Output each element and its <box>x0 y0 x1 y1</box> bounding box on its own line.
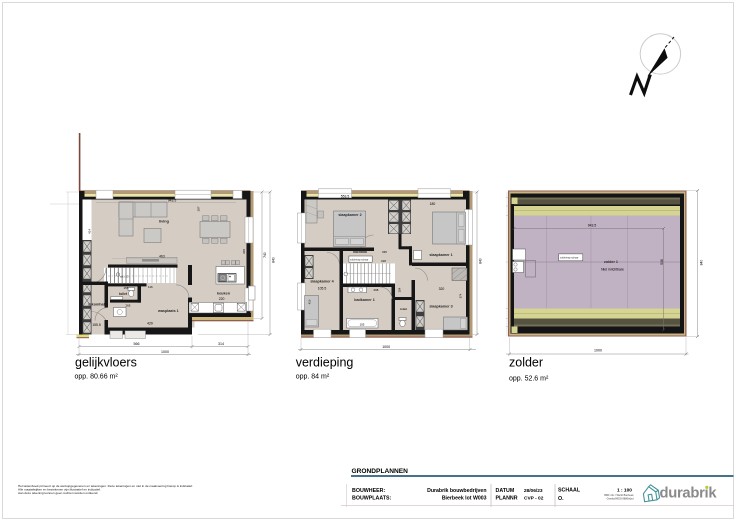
svg-text:GRONDPLANNEN: GRONDPLANNEN <box>352 468 409 475</box>
svg-text:opp. 52.6 m²: opp. 52.6 m² <box>509 376 549 383</box>
svg-text:gelijkvloers: gelijkvloers <box>75 356 137 370</box>
svg-text:opp. 84 m²: opp. 84 m² <box>296 374 330 381</box>
svg-text:116: 116 <box>148 285 153 289</box>
svg-text:1000: 1000 <box>161 350 169 354</box>
svg-text:429: 429 <box>147 321 153 325</box>
svg-text:verdieping: verdieping <box>296 356 354 370</box>
svg-text:368: 368 <box>242 249 246 254</box>
svg-text:265: 265 <box>126 303 131 307</box>
svg-text:opp. 80.66 m²: opp. 80.66 m² <box>75 374 119 381</box>
svg-text:840: 840 <box>479 258 483 264</box>
svg-text:slaapkamer 2: slaapkamer 2 <box>338 213 361 217</box>
svg-text:SCHAAL: SCHAAL <box>558 488 581 494</box>
svg-text:1 : 100: 1 : 100 <box>617 487 632 493</box>
svg-text:O.: O. <box>558 496 564 502</box>
svg-text:DATUM: DATUM <box>496 488 515 494</box>
svg-text:740: 740 <box>263 252 267 258</box>
svg-text:PLANNR: PLANNR <box>496 495 518 501</box>
svg-text:314: 314 <box>218 342 224 346</box>
svg-text:320: 320 <box>439 287 445 291</box>
svg-text:155: 155 <box>124 286 129 290</box>
svg-text:Aan deze tekening kunnen geen: Aan deze tekening kunnen geen rechten wo… <box>18 491 98 495</box>
svg-text:zoldertrap schaar: zoldertrap schaar <box>560 257 579 260</box>
svg-text:374: 374 <box>459 293 463 298</box>
svg-text:155.5: 155.5 <box>92 323 101 327</box>
svg-text:BOUWPLAATS:: BOUWPLAATS: <box>352 495 392 501</box>
svg-text:CVP - 02: CVP - 02 <box>524 495 544 501</box>
svg-text:1000: 1000 <box>594 348 602 352</box>
svg-text:slaapkamer 4: slaapkamer 4 <box>310 280 334 284</box>
svg-text:nachthal: nachthal <box>353 250 367 254</box>
svg-text:zoldertrap schaar: zoldertrap schaar <box>350 258 369 261</box>
svg-text:220: 220 <box>219 297 225 301</box>
svg-text:zolder: zolder <box>509 356 543 370</box>
svg-text:living: living <box>159 220 170 224</box>
svg-text:toilet: toilet <box>119 292 128 296</box>
svg-text:318: 318 <box>381 259 386 263</box>
svg-text:180: 180 <box>430 202 436 206</box>
svg-text:298: 298 <box>374 288 379 292</box>
svg-text:105.5: 105.5 <box>318 287 327 291</box>
svg-text:BOUWHEER:: BOUWHEER: <box>352 488 385 494</box>
svg-text:335: 335 <box>382 250 387 254</box>
svg-text:1000: 1000 <box>382 345 390 349</box>
svg-text:416: 416 <box>308 299 312 304</box>
svg-text:840: 840 <box>271 257 275 263</box>
svg-text:187: 187 <box>197 206 201 211</box>
svg-text:wasplaats 1: wasplaats 1 <box>157 309 179 313</box>
svg-text:aik.t 13-: aik.t 13- <box>120 275 129 279</box>
svg-text:badkamer 1: badkamer 1 <box>354 298 375 302</box>
svg-text:durabrik: durabrik <box>660 486 718 502</box>
svg-text:Geselp/W003 8886b/jnd: Geselp/W003 8886b/jnd <box>607 498 634 501</box>
svg-text:566: 566 <box>134 342 140 346</box>
svg-text:Bierbeek lot W003: Bierbeek lot W003 <box>442 496 487 502</box>
svg-text:536: 536 <box>660 259 664 265</box>
svg-text:463: 463 <box>159 254 165 258</box>
svg-text:zolder 1: zolder 1 <box>604 260 618 264</box>
svg-text:840: 840 <box>700 260 704 266</box>
svg-text:keuken: keuken <box>217 292 231 296</box>
svg-text:slaapkamer 1: slaapkamer 1 <box>429 253 452 257</box>
svg-text:105: 105 <box>360 322 365 326</box>
svg-text:slaapkamer 3: slaapkamer 3 <box>429 304 452 308</box>
svg-text:Niet inrichtbare: Niet inrichtbare <box>601 268 624 272</box>
svg-text:943.5: 943.5 <box>168 199 177 203</box>
svg-text:Durabrik bouwbedrijven: Durabrik bouwbedrijven <box>427 488 486 494</box>
svg-text:414: 414 <box>88 229 92 234</box>
svg-text:553.5: 553.5 <box>341 195 350 199</box>
svg-text:943.5: 943.5 <box>588 224 597 228</box>
svg-text:104: 104 <box>398 287 402 292</box>
svg-text:inkomhal: inkomhal <box>88 302 104 306</box>
svg-text:toilet: toilet <box>400 307 407 311</box>
svg-text:28/06/23: 28/06/23 <box>524 488 543 494</box>
svg-text:BMF nbv / Werkt Bierbeek: BMF nbv / Werkt Bierbeek <box>604 494 634 497</box>
